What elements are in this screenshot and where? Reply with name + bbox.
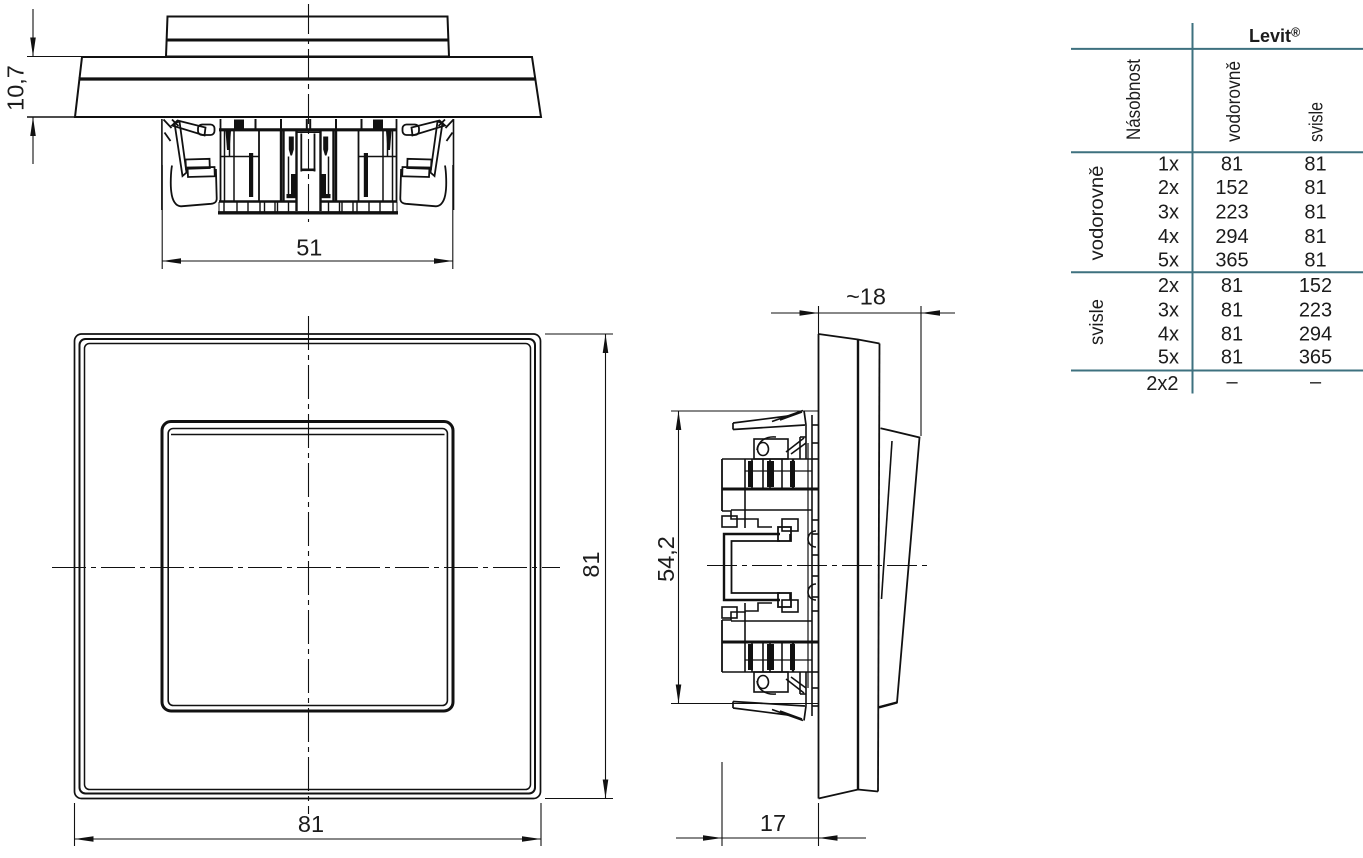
svg-text:81: 81 xyxy=(1304,177,1326,199)
svg-text:81: 81 xyxy=(1304,226,1326,248)
svg-text:vodorovně: vodorovně xyxy=(1086,166,1108,261)
svg-text:294: 294 xyxy=(1299,323,1332,345)
svg-text:1x: 1x xyxy=(1158,153,1179,175)
svg-text:81: 81 xyxy=(1221,346,1243,368)
svg-text:2x2: 2x2 xyxy=(1146,373,1178,395)
svg-text:81: 81 xyxy=(1304,153,1326,175)
svg-text:Násobnost: Násobnost xyxy=(1123,59,1145,140)
svg-text:10,7: 10,7 xyxy=(3,65,29,111)
svg-text:–: – xyxy=(1310,371,1322,393)
svg-text:365: 365 xyxy=(1215,249,1248,271)
svg-text:81: 81 xyxy=(1221,300,1243,322)
svg-text:2x: 2x xyxy=(1158,177,1179,199)
svg-text:5x: 5x xyxy=(1158,249,1179,271)
svg-text:365: 365 xyxy=(1299,346,1332,368)
svg-text:3x: 3x xyxy=(1158,300,1179,322)
svg-text:~18: ~18 xyxy=(846,284,886,310)
svg-text:3x: 3x xyxy=(1158,202,1179,224)
svg-text:vodorovně: vodorovně xyxy=(1223,61,1245,142)
svg-text:81: 81 xyxy=(1304,202,1326,224)
svg-text:81: 81 xyxy=(578,551,604,577)
svg-text:54,2: 54,2 xyxy=(653,536,679,582)
svg-text:Levit®: Levit® xyxy=(1249,26,1301,47)
svg-text:–: – xyxy=(1226,371,1238,393)
svg-text:294: 294 xyxy=(1215,226,1248,248)
svg-text:81: 81 xyxy=(1221,275,1243,297)
svg-text:2x: 2x xyxy=(1158,275,1179,297)
svg-text:17: 17 xyxy=(760,810,786,836)
svg-text:5x: 5x xyxy=(1158,346,1179,368)
svg-text:152: 152 xyxy=(1299,275,1332,297)
svg-text:223: 223 xyxy=(1299,300,1332,322)
svg-text:svisle: svisle xyxy=(1086,299,1108,345)
svg-text:223: 223 xyxy=(1215,202,1248,224)
svg-text:4x: 4x xyxy=(1158,226,1179,248)
svg-text:81: 81 xyxy=(1221,323,1243,345)
svg-text:81: 81 xyxy=(298,811,324,837)
svg-text:81: 81 xyxy=(1304,249,1326,271)
svg-text:4x: 4x xyxy=(1158,323,1179,345)
svg-text:81: 81 xyxy=(1221,153,1243,175)
svg-text:svisle: svisle xyxy=(1306,102,1328,142)
svg-text:51: 51 xyxy=(296,235,322,261)
svg-text:152: 152 xyxy=(1215,177,1248,199)
